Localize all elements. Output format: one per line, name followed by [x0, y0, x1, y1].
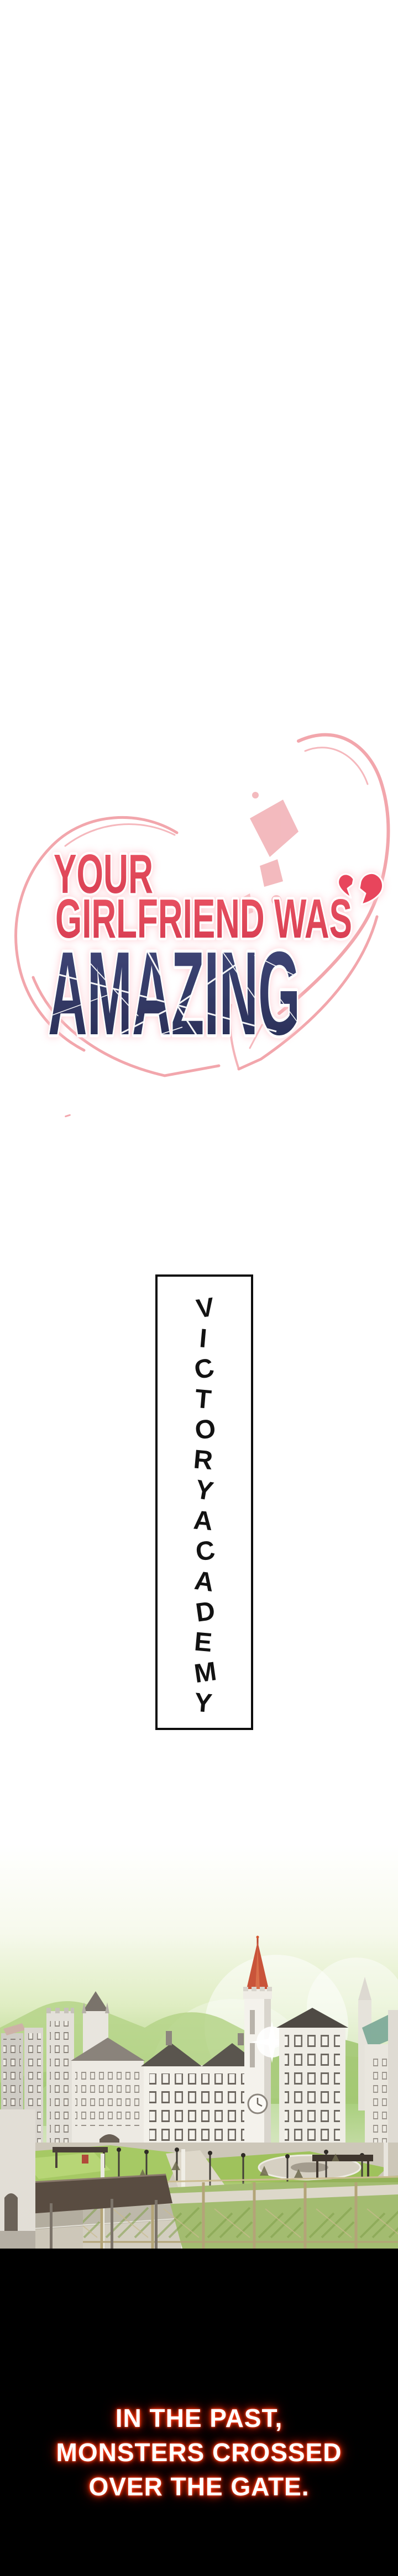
series-title-lockup: AMAZING [0, 718, 398, 1082]
webtoon-page: AMAZING [0, 0, 398, 2576]
campus-illustration [0, 1844, 398, 2249]
narration-caption: IN THE PAST, MONSTERS CROSSED OVER THE G… [0, 2401, 398, 2504]
caption-line-2: MONSTERS CROSSED [0, 2435, 398, 2469]
caption-line-1: IN THE PAST, [0, 2401, 398, 2435]
pink-dash-mark [65, 1114, 71, 1117]
narration-footer: IN THE PAST, MONSTERS CROSSED OVER THE G… [0, 2249, 398, 2576]
series-title-text: YOUR GIRLFRIEND WAS AMAZING [48, 843, 352, 1060]
victory-academy-sign: V I C T O R Y A C A D E M Y [155, 1274, 253, 1730]
sign-letter: Y [155, 1684, 251, 1723]
caption-line-3: OVER THE GATE. [0, 2469, 398, 2504]
title-line-3: AMAZING [48, 927, 300, 1060]
